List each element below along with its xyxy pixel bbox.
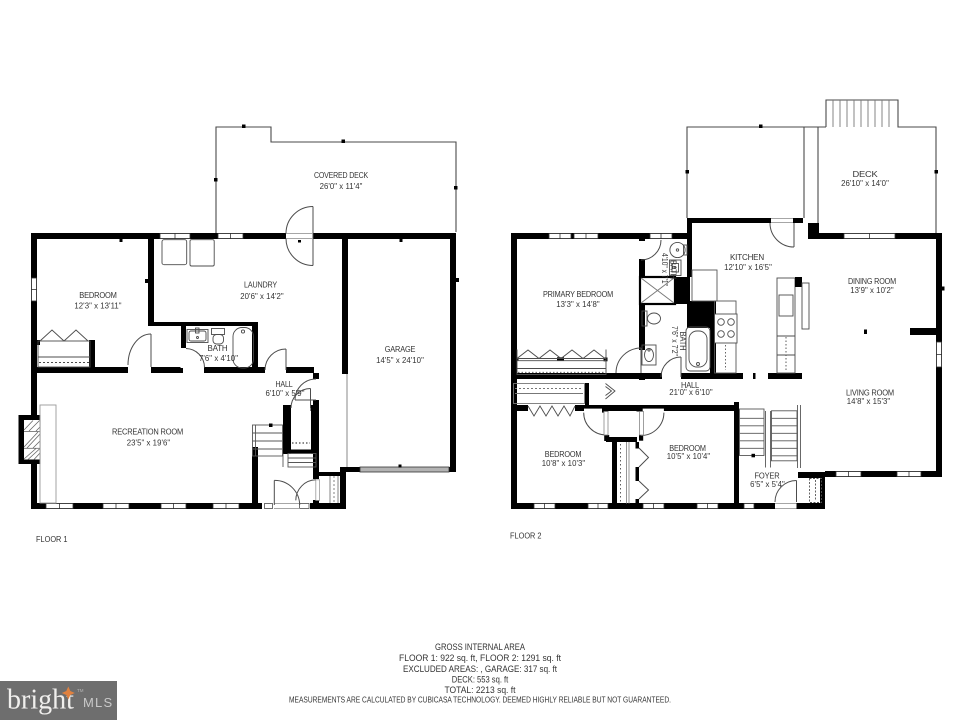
svg-text:bright: bright xyxy=(7,685,74,716)
svg-text:6'10" x 5'9": 6'10" x 5'9" xyxy=(265,389,304,398)
svg-text:RECREATION ROOM: RECREATION ROOM xyxy=(112,427,183,437)
svg-text:MEASUREMENTS ARE CALCULATED BY: MEASUREMENTS ARE CALCULATED BY CUBICASA … xyxy=(289,695,671,705)
svg-text:MLS: MLS xyxy=(83,695,113,710)
svg-text:EXCLUDED AREAS: , GARAGE: 317: EXCLUDED AREAS: , GARAGE: 317 sq. ft xyxy=(403,663,557,674)
svg-text:7'6" x 7'2": 7'6" x 7'2" xyxy=(670,326,679,356)
svg-text:BEDROOM: BEDROOM xyxy=(79,290,117,300)
svg-text:TM: TM xyxy=(77,688,84,693)
svg-text:KITCHEN: KITCHEN xyxy=(730,252,764,262)
svg-text:BATH: BATH xyxy=(669,260,679,279)
svg-text:TOTAL: 2213 sq. ft: TOTAL: 2213 sq. ft xyxy=(445,684,516,695)
svg-text:DECK: DECK xyxy=(853,169,879,179)
svg-text:14'8" x 15'3": 14'8" x 15'3" xyxy=(847,397,891,406)
svg-text:20'6" x 14'2": 20'6" x 14'2" xyxy=(240,292,284,301)
svg-text:14'5" x 24'10": 14'5" x 24'10" xyxy=(376,356,424,365)
svg-text:21'0" x 6'10": 21'0" x 6'10" xyxy=(669,388,713,397)
svg-text:LAUNDRY: LAUNDRY xyxy=(244,280,278,290)
svg-text:13'9" x 10'2": 13'9" x 10'2" xyxy=(850,286,894,295)
svg-text:13'3" x 14'8": 13'3" x 14'8" xyxy=(556,300,600,309)
svg-text:10'5" x 10'4": 10'5" x 10'4" xyxy=(667,452,711,461)
svg-text:12'3" x 13'11": 12'3" x 13'11" xyxy=(74,302,121,311)
svg-text:BATH: BATH xyxy=(208,343,228,353)
svg-text:26'0" x 11'4": 26'0" x 11'4" xyxy=(320,182,363,191)
svg-text:FLOOR 2: FLOOR 2 xyxy=(510,531,542,541)
svg-text:4'10" x 7'1": 4'10" x 7'1" xyxy=(660,253,669,286)
svg-text:FLOOR 1: FLOOR 1 xyxy=(36,534,68,544)
svg-text:FOYER: FOYER xyxy=(755,471,780,481)
svg-text:BEDROOM: BEDROOM xyxy=(545,449,582,459)
svg-text:COVERED DECK: COVERED DECK xyxy=(314,170,369,180)
svg-text:DINING ROOM: DINING ROOM xyxy=(848,276,896,286)
svg-text:LIVING ROOM: LIVING ROOM xyxy=(846,388,894,398)
svg-text:10'8" x 10'3": 10'8" x 10'3" xyxy=(542,459,586,468)
svg-text:PRIMARY BEDROOM: PRIMARY BEDROOM xyxy=(543,289,613,299)
svg-text:GROSS INTERNAL AREA: GROSS INTERNAL AREA xyxy=(435,641,526,652)
svg-text:HALL: HALL xyxy=(276,379,293,389)
svg-text:12'10" x 16'5": 12'10" x 16'5" xyxy=(724,263,772,272)
svg-text:23'5" x 19'6": 23'5" x 19'6" xyxy=(127,439,171,448)
svg-text:7'6" x 4'10": 7'6" x 4'10" xyxy=(199,354,238,363)
svg-text:6'5" x 5'4": 6'5" x 5'4" xyxy=(750,480,785,489)
svg-text:DECK: 553 sq. ft: DECK: 553 sq. ft xyxy=(452,674,509,685)
svg-text:26'10" x 14'0": 26'10" x 14'0" xyxy=(841,179,889,188)
svg-text:GARAGE: GARAGE xyxy=(385,344,416,354)
svg-text:FLOOR 1: 922 sq. ft, FLOOR 2:: FLOOR 1: 922 sq. ft, FLOOR 2: 1291 sq. f… xyxy=(399,652,561,663)
